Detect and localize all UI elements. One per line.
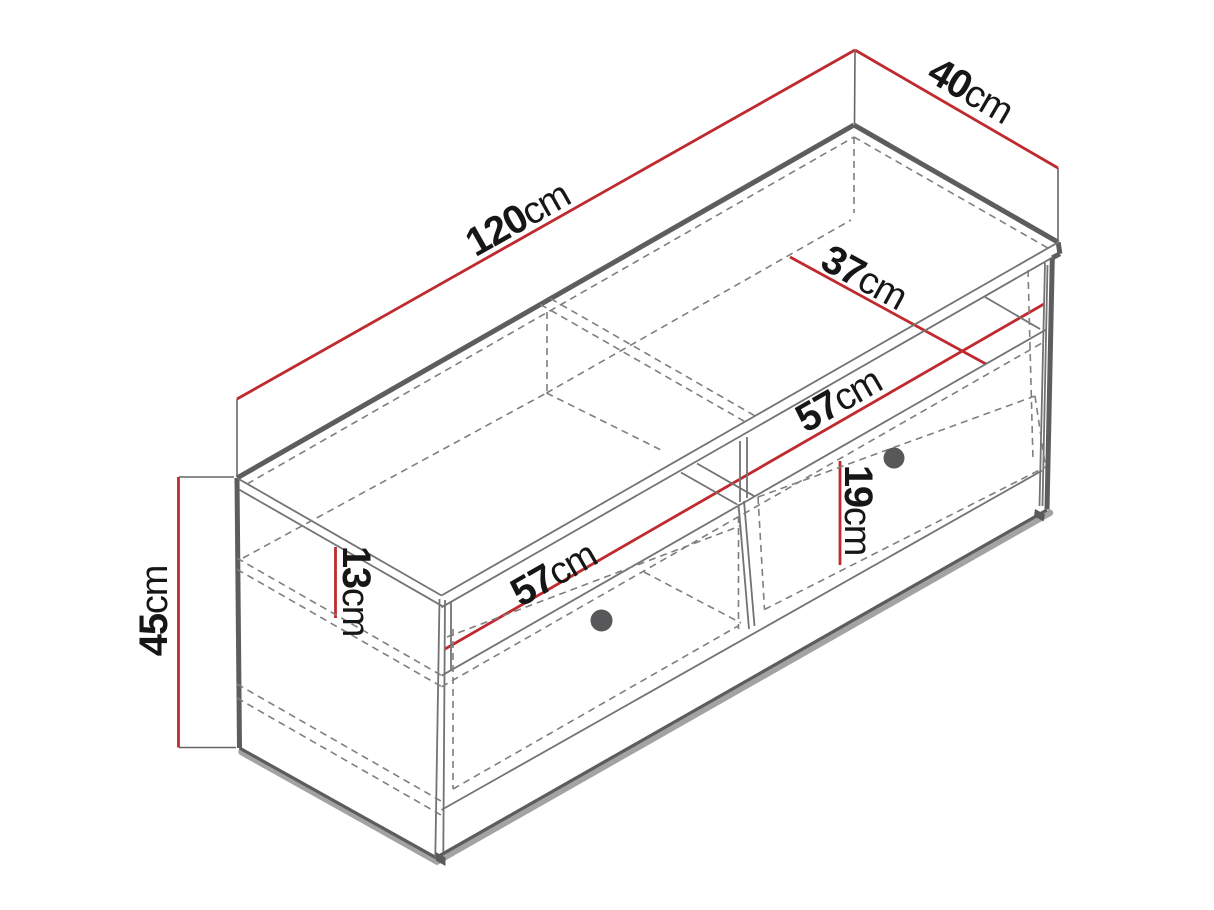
svg-text:19cm: 19cm [836, 465, 880, 555]
svg-text:45cm: 45cm [132, 566, 176, 656]
svg-text:13cm: 13cm [334, 546, 378, 636]
